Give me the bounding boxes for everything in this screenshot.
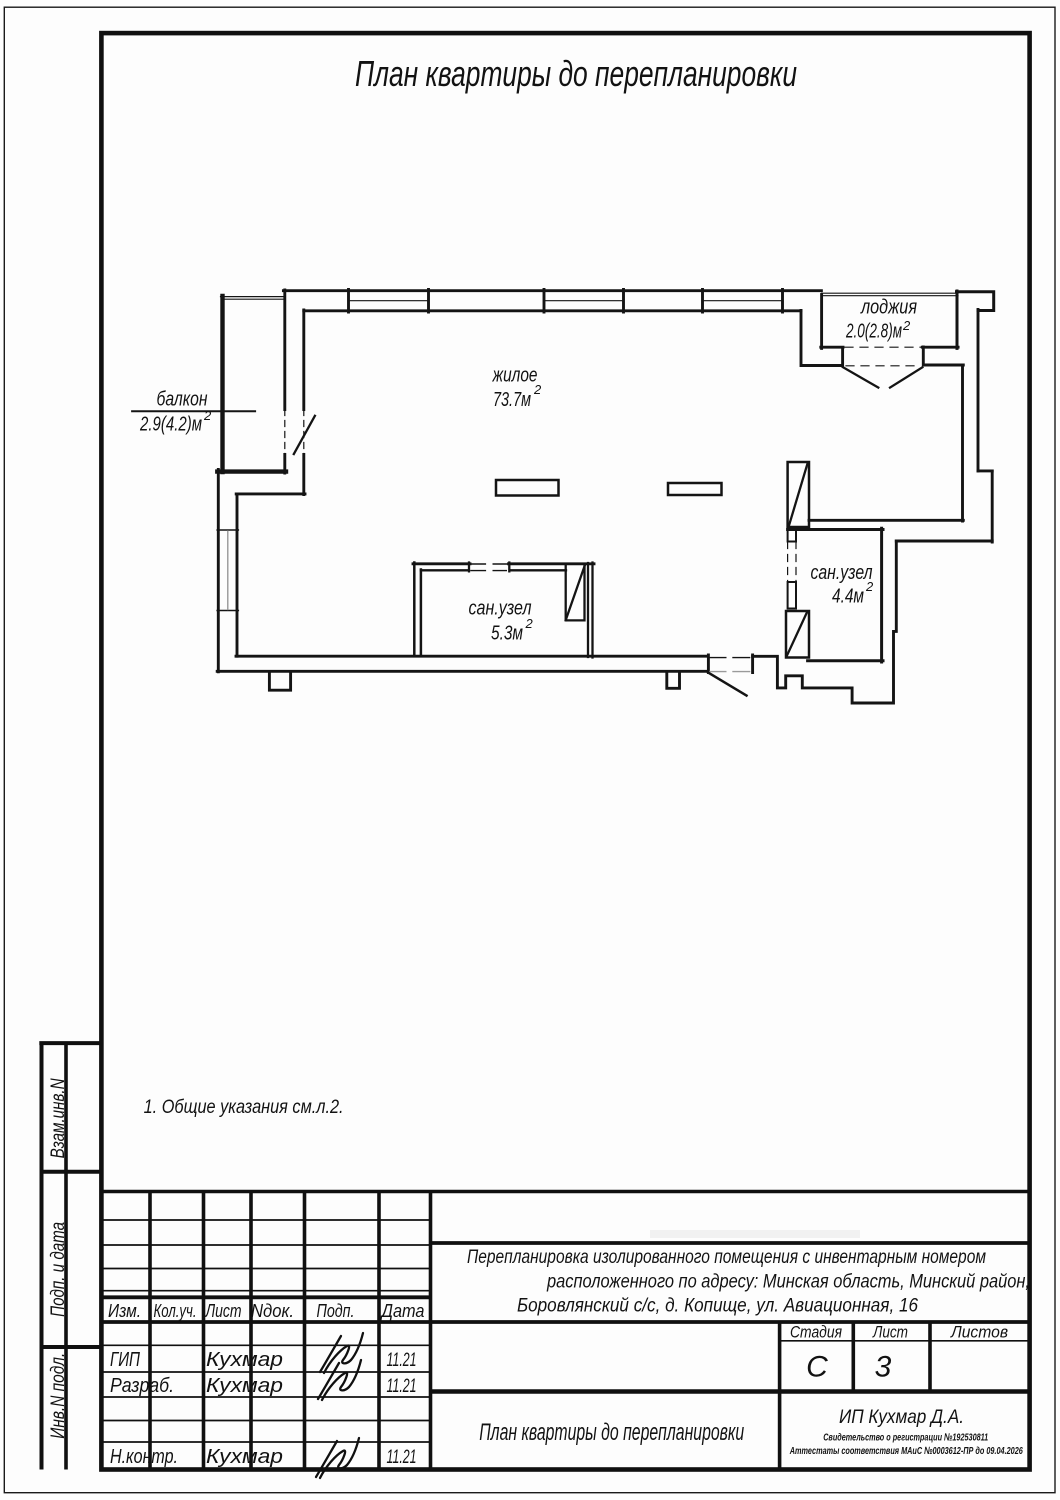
svg-text:План квартиры до перепланировк: План квартиры до перепланировки	[479, 1419, 744, 1446]
svg-text:2: 2	[203, 408, 212, 423]
svg-text:Подп.: Подп.	[317, 1301, 355, 1321]
svg-text:11.21: 11.21	[387, 1376, 417, 1397]
svg-text:Боровлянский с/с, д. Копище, у: Боровлянский с/с, д. Копище, ул. Авиацио…	[517, 1296, 918, 1317]
svg-text:Лист: Лист	[872, 1324, 908, 1342]
svg-text:2: 2	[533, 382, 542, 397]
svg-text:Кол.уч.: Кол.уч.	[154, 1301, 197, 1321]
svg-text:Аттестаты соответствия МАиС №0: Аттестаты соответствия МАиС №0003612-ПР …	[789, 1445, 1023, 1457]
svg-text:Nдок.: Nдок.	[251, 1301, 294, 1321]
svg-text:ИП Кухмар Д.А.: ИП Кухмар Д.А.	[839, 1407, 964, 1428]
svg-text:Н.контр.: Н.контр.	[110, 1446, 178, 1468]
svg-text:Изм.: Изм.	[108, 1301, 141, 1321]
svg-text:ГИП: ГИП	[110, 1349, 140, 1371]
svg-text:1. Общие указания см.л.2.: 1. Общие указания см.л.2.	[144, 1097, 344, 1118]
svg-text:Лист: Лист	[205, 1301, 242, 1321]
svg-text:Кухмар: Кухмар	[206, 1349, 283, 1371]
svg-text:Разраб.: Разраб.	[110, 1375, 174, 1397]
svg-text:Взам.инв.N: Взам.инв.N	[48, 1078, 69, 1158]
svg-text:Листов: Листов	[950, 1324, 1008, 1342]
svg-text:11.21: 11.21	[387, 1447, 417, 1468]
svg-text:План квартиры до перепланировк: План квартиры до перепланировки	[355, 53, 797, 94]
svg-text:Кухмар: Кухмар	[206, 1446, 283, 1468]
svg-text:2.9(4.2)м: 2.9(4.2)м	[139, 414, 202, 436]
svg-text:сан.узел: сан.узел	[469, 598, 532, 620]
svg-text:Подп. и дата: Подп. и дата	[48, 1222, 69, 1317]
svg-text:расположенного по адресу: Минс: расположенного по адресу: Минская област…	[546, 1272, 1030, 1293]
svg-text:2: 2	[902, 318, 911, 333]
svg-text:лоджия: лоджия	[860, 297, 917, 319]
svg-text:Кухмар: Кухмар	[206, 1375, 283, 1397]
svg-text:Перепланировка изолированного: Перепланировка изолированного помещения …	[467, 1247, 986, 1268]
svg-text:Дата: Дата	[380, 1301, 425, 1321]
svg-text:11.21: 11.21	[387, 1350, 417, 1371]
svg-text:5.3м: 5.3м	[491, 623, 523, 645]
svg-text:сан.узел: сан.узел	[811, 562, 873, 584]
svg-text:2: 2	[525, 616, 534, 631]
svg-text:2.0(2.8)м: 2.0(2.8)м	[845, 321, 902, 343]
svg-text:Свидетельство о регистрации №1: Свидетельство о регистрации №192530811	[823, 1432, 988, 1444]
svg-text:жилое: жилое	[492, 365, 538, 387]
svg-text:3: 3	[875, 1351, 892, 1384]
svg-text:С: С	[806, 1351, 828, 1384]
svg-text:4.4м: 4.4м	[832, 586, 864, 608]
svg-text:Инв.N подл.: Инв.N подл.	[48, 1353, 69, 1439]
svg-text:балкон: балкон	[157, 389, 208, 411]
svg-text:2: 2	[865, 579, 874, 594]
svg-text:Стадия: Стадия	[790, 1324, 842, 1342]
svg-text:73.7м: 73.7м	[493, 389, 531, 411]
